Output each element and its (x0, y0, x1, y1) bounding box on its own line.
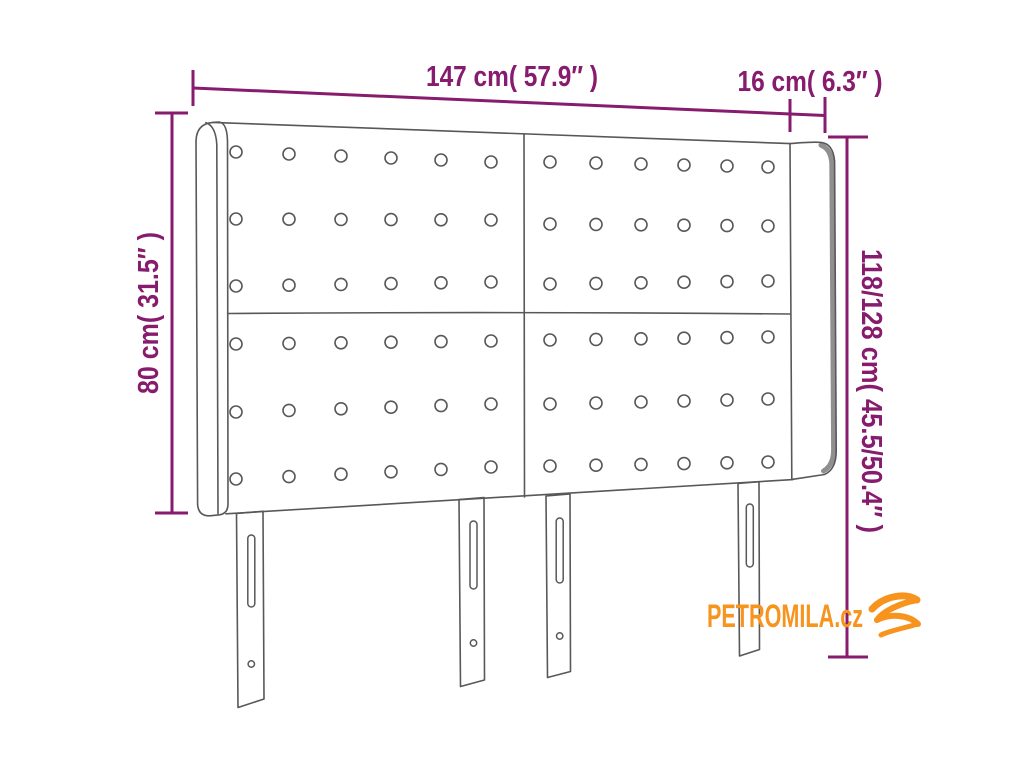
tufting-button (435, 336, 447, 348)
watermark-text: PETROMILA.cz (707, 598, 863, 634)
tufting-button (590, 277, 602, 289)
tufting-button (721, 394, 733, 406)
tufting-button (762, 393, 774, 405)
tufting-button (721, 160, 733, 172)
tufting-button (635, 458, 647, 470)
tufting-button (544, 278, 556, 290)
product-dimension-diagram-page: 147 cm( 57.9″ ) 16 cm( 6.3″ ) 80 cm( 31.… (0, 0, 1024, 768)
center-seam (524, 134, 525, 497)
tufting-button (762, 220, 774, 232)
tufting-button (385, 152, 397, 164)
tufting-button (435, 277, 447, 289)
leg-1-hole (248, 661, 254, 667)
tufting-button (544, 398, 556, 410)
tufting-button (230, 406, 242, 418)
headboard-dimension-diagram: 147 cm( 57.9″ ) 16 cm( 6.3″ ) 80 cm( 31.… (0, 0, 1024, 768)
logo-swoosh-icon (872, 596, 918, 635)
tufting-button (335, 403, 347, 415)
tufting-button (590, 157, 602, 169)
watermark: PETROMILA.cz (707, 596, 918, 635)
tufting-button (544, 334, 556, 346)
tufting-button (385, 336, 397, 348)
tufting-button (485, 461, 497, 473)
tufting-button (335, 278, 347, 290)
leg-2-slot (470, 521, 477, 589)
tufting-button (635, 158, 647, 170)
tufting-button (485, 398, 497, 410)
tufting-button (635, 277, 647, 289)
tufting-button (678, 395, 690, 407)
panel-height-dimension-label: 80 cm( 31.5″ ) (133, 232, 165, 394)
tufting-button (335, 213, 347, 225)
tufting-button (762, 331, 774, 343)
tufting-button (435, 214, 447, 226)
tufting-button (721, 220, 733, 232)
tufting-button (385, 214, 397, 226)
tufting-button (635, 396, 647, 408)
tufting-button (590, 218, 602, 230)
left-ear (196, 122, 228, 516)
tufting-button (678, 276, 690, 288)
tufting-button (678, 332, 690, 344)
tufting-button (721, 457, 733, 469)
mounting-legs (237, 482, 760, 708)
headboard-panel (227, 123, 792, 514)
tufting-button (485, 156, 497, 168)
width-dimension-label: 147 cm( 57.9″ ) (426, 61, 598, 93)
leg-2-hole (470, 640, 476, 646)
leg-3-slot (556, 518, 563, 583)
tufting-button (230, 280, 242, 292)
tufting-button (335, 337, 347, 349)
tufting-button (762, 161, 774, 173)
tufting-button (435, 400, 447, 412)
leg-4-slot (746, 504, 753, 567)
tufting-button (485, 335, 497, 347)
tufting-button (283, 337, 295, 349)
tufting-button (544, 460, 556, 472)
total-height-dimension-label: 118/128 cm( 45.5/50.4″ ) (855, 249, 887, 533)
tufting-button (335, 150, 347, 162)
tufting-button (230, 213, 242, 225)
tufting-button (283, 404, 295, 416)
tufting-button (485, 214, 497, 226)
tufting-button (230, 338, 242, 350)
tufting-button (335, 468, 347, 480)
right-ear (790, 142, 836, 479)
tufting-button (590, 333, 602, 345)
tufting-button (435, 154, 447, 166)
tufting-button (283, 213, 295, 225)
tufting-button (590, 459, 602, 471)
tufting-button (721, 332, 733, 344)
ear-depth-dimension-label: 16 cm( 6.3″ ) (738, 66, 883, 98)
tufting-button (283, 148, 295, 160)
leg-3-hole (557, 633, 563, 639)
tufting-button (385, 401, 397, 413)
tufting-button (635, 219, 647, 231)
tufting-button (678, 159, 690, 171)
tufting-button (678, 458, 690, 470)
tufting-button (230, 146, 242, 158)
tufting-button (590, 397, 602, 409)
tufting-button (635, 333, 647, 345)
tufting-button (762, 456, 774, 468)
tufting-button (283, 279, 295, 291)
tufting-button (230, 473, 242, 485)
tufting-button (544, 156, 556, 168)
tufting-button (385, 466, 397, 478)
tufting-button (435, 463, 447, 475)
tufting-button (283, 471, 295, 483)
tufting-button (485, 276, 497, 288)
tufting-button (762, 275, 774, 287)
tufting-button (678, 219, 690, 231)
tufting-button (544, 218, 556, 230)
tufting-button (385, 278, 397, 290)
leg-1-slot (248, 535, 255, 607)
tufting-button (721, 276, 733, 288)
